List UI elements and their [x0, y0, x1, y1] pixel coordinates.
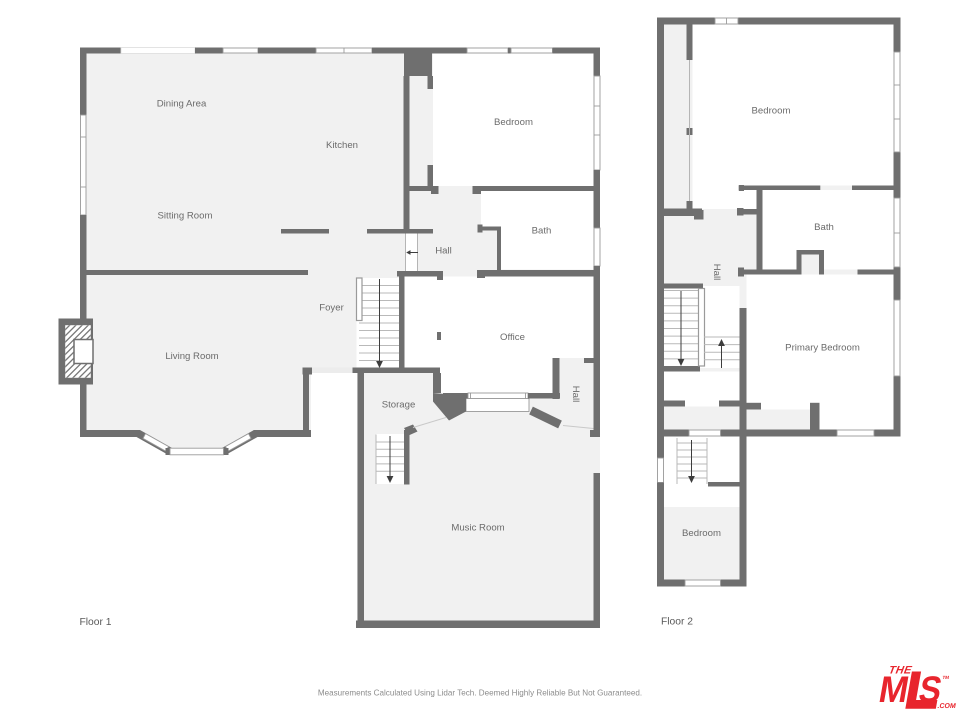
svg-text:Primary Bedroom: Primary Bedroom — [785, 343, 860, 354]
svg-text:Dining Area: Dining Area — [157, 99, 207, 110]
svg-text:Kitchen: Kitchen — [326, 140, 358, 151]
svg-text:Storage: Storage — [382, 400, 416, 411]
svg-text:Bedroom: Bedroom — [682, 528, 721, 539]
svg-text:Floor 2: Floor 2 — [661, 617, 693, 628]
svg-text:Foyer: Foyer — [319, 303, 344, 314]
svg-text:Hall: Hall — [570, 386, 581, 403]
svg-text:Bath: Bath — [814, 222, 834, 233]
svg-text:Sitting Room: Sitting Room — [158, 211, 213, 222]
svg-text:TM: TM — [942, 675, 950, 680]
svg-text:Floor 1: Floor 1 — [79, 617, 111, 628]
svg-text:Hall: Hall — [435, 246, 452, 257]
svg-text:Bedroom: Bedroom — [494, 117, 533, 128]
svg-text:Living Room: Living Room — [165, 351, 218, 362]
svg-text:.COM: .COM — [937, 703, 957, 710]
svg-text:Office: Office — [500, 332, 525, 343]
svg-text:Measurements Calculated Using: Measurements Calculated Using Lidar Tech… — [318, 689, 642, 698]
svg-text:Music Room: Music Room — [451, 523, 504, 534]
svg-text:Bedroom: Bedroom — [752, 106, 791, 117]
svg-text:Hall: Hall — [711, 264, 722, 281]
svg-text:Bath: Bath — [532, 226, 552, 237]
